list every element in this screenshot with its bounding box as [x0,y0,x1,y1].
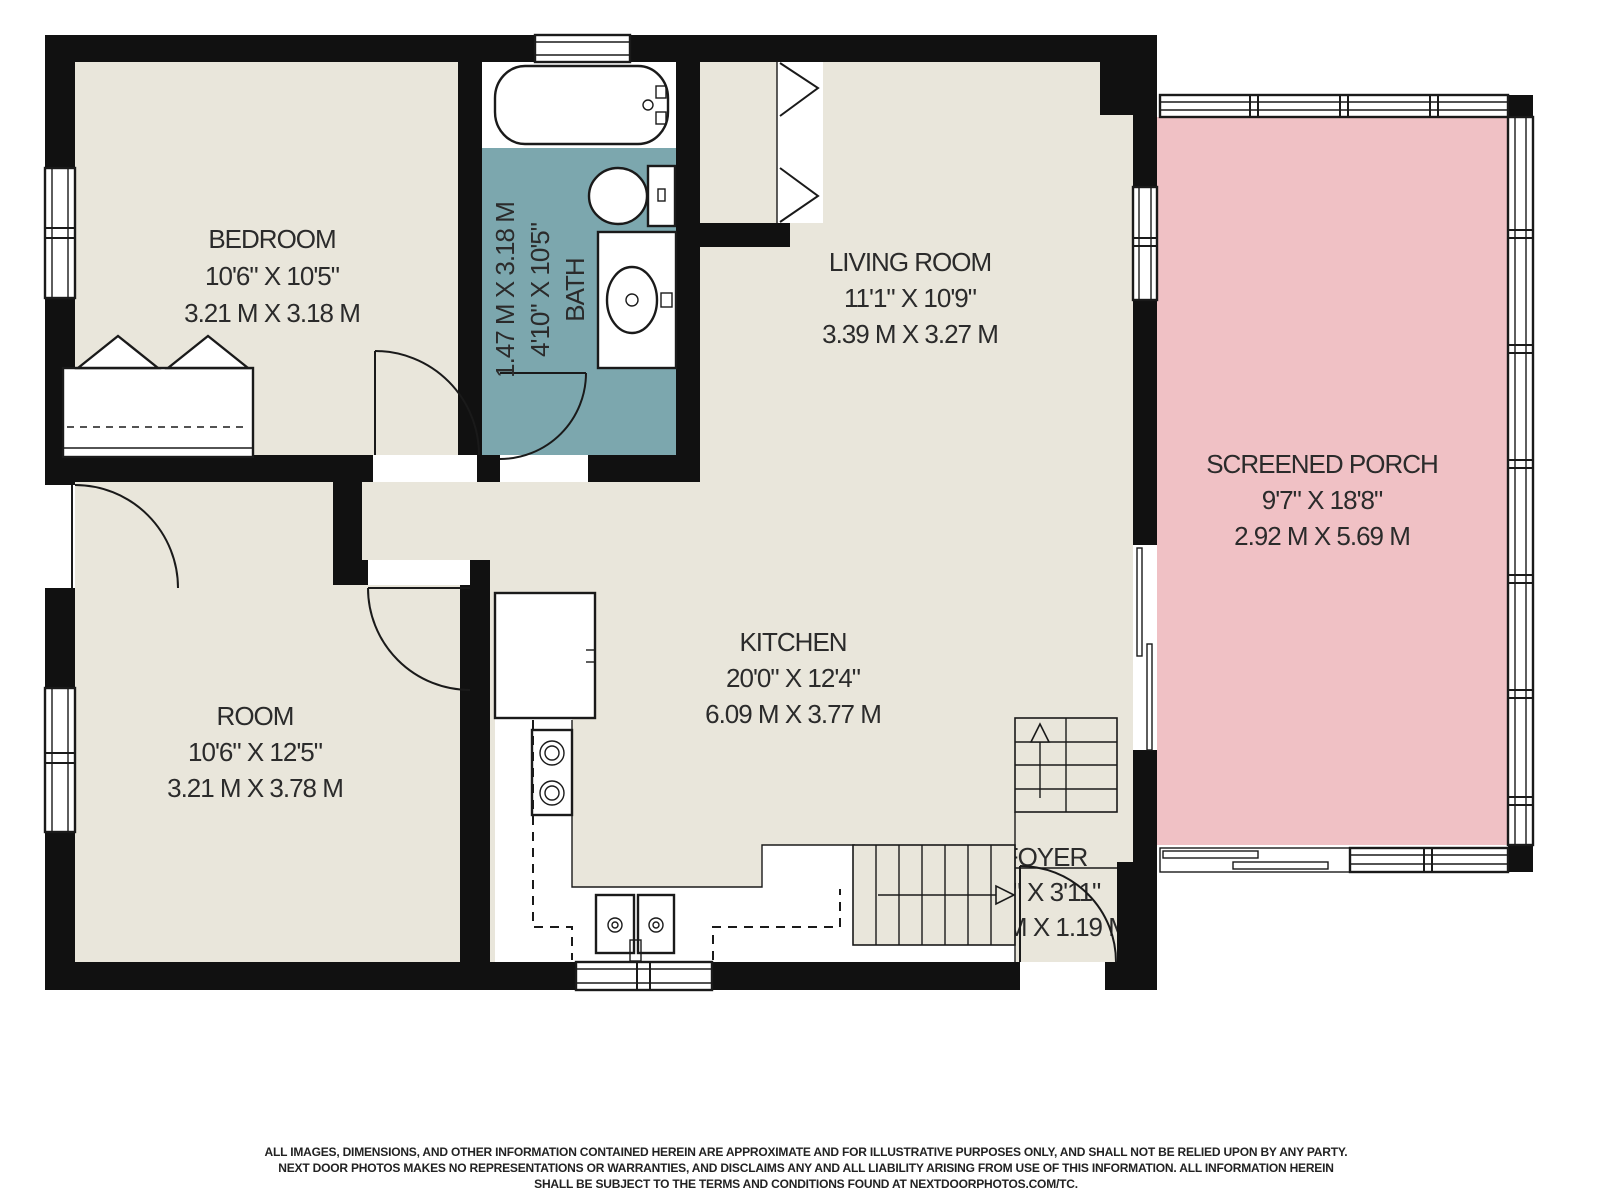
window-icon [1133,187,1157,300]
stove-icon [532,730,572,815]
entry-door-gap [1020,962,1105,990]
room-dims-imperial: 9'7" X 18'8" [1262,485,1383,515]
room-dims-metric: 1.47 M X 3.18 M [490,202,520,378]
room-dims-metric: 3.39 M X 3.27 M [822,319,998,349]
stairs-up-icon [1015,718,1117,812]
stairs-down-icon [853,845,1015,945]
room-name: KITCHEN [739,627,846,657]
room-dims-imperial: 4'10" X 10'5" [525,222,555,357]
porch-sliding-door-icon [1160,848,1350,872]
kitchen-sink-icon [596,895,674,961]
bedroom-door-gap [373,455,477,482]
screen-window-icon [1350,848,1508,872]
bathtub-icon [495,66,668,144]
window-icon [45,168,75,298]
floor-plan: FOYER 2'7" X 3'11" 0.79 M X 1.19 M [0,0,1600,1200]
window-icon [576,962,712,990]
room-name: BEDROOM [208,224,335,254]
disclaimer-line: NEXT DOOR PHOTOS MAKES NO REPRESENTATION… [278,1161,1333,1175]
bedroom-label: BEDROOM 10'6" X 10'5" 3.21 M X 3.18 M [184,224,360,328]
toilet-icon [589,166,675,226]
room-dims-metric: 2.92 M X 5.69 M [1234,521,1410,551]
room-dims-imperial: 10'6" X 12'5" [188,737,323,767]
room-ext-door-gap [45,485,75,588]
room-name: ROOM [217,701,294,731]
screen-window-icon [1508,117,1533,845]
room-dims-metric: 3.21 M X 3.78 M [167,773,343,803]
bathroom-sink-icon [598,232,676,368]
living-room-label: LIVING ROOM 11'1" X 10'9" 3.39 M X 3.27 … [822,247,998,349]
porch-floor [1157,117,1508,845]
window-icon [45,688,75,832]
room-dims-imperial: 10'6" X 10'5" [205,261,340,291]
room-name: LIVING ROOM [829,247,991,277]
room-dims-imperial: 20'0" X 12'4" [726,663,861,693]
room-name: SCREENED PORCH [1206,449,1438,479]
room-dims-metric: 6.09 M X 3.77 M [705,699,881,729]
room-dims-metric: 3.21 M X 3.18 M [184,298,360,328]
floor-plan-page: FOYER 2'7" X 3'11" 0.79 M X 1.19 M [0,0,1600,1200]
room-door-gap [368,560,470,585]
disclaimer-line: SHALL BE SUBJECT TO THE TERMS AND CONDIT… [534,1177,1078,1191]
sliding-door-icon [1133,545,1157,750]
window-icon [535,35,630,62]
fridge-icon [495,593,595,718]
bath-door-gap [500,455,588,482]
room-name: BATH [560,258,590,321]
disclaimer-line: ALL IMAGES, DIMENSIONS, AND OTHER INFORM… [265,1145,1348,1159]
disclaimer: ALL IMAGES, DIMENSIONS, AND OTHER INFORM… [265,1145,1348,1191]
room-dims-imperial: 11'1" X 10'9" [844,283,977,313]
screen-window-icon [1160,95,1508,117]
